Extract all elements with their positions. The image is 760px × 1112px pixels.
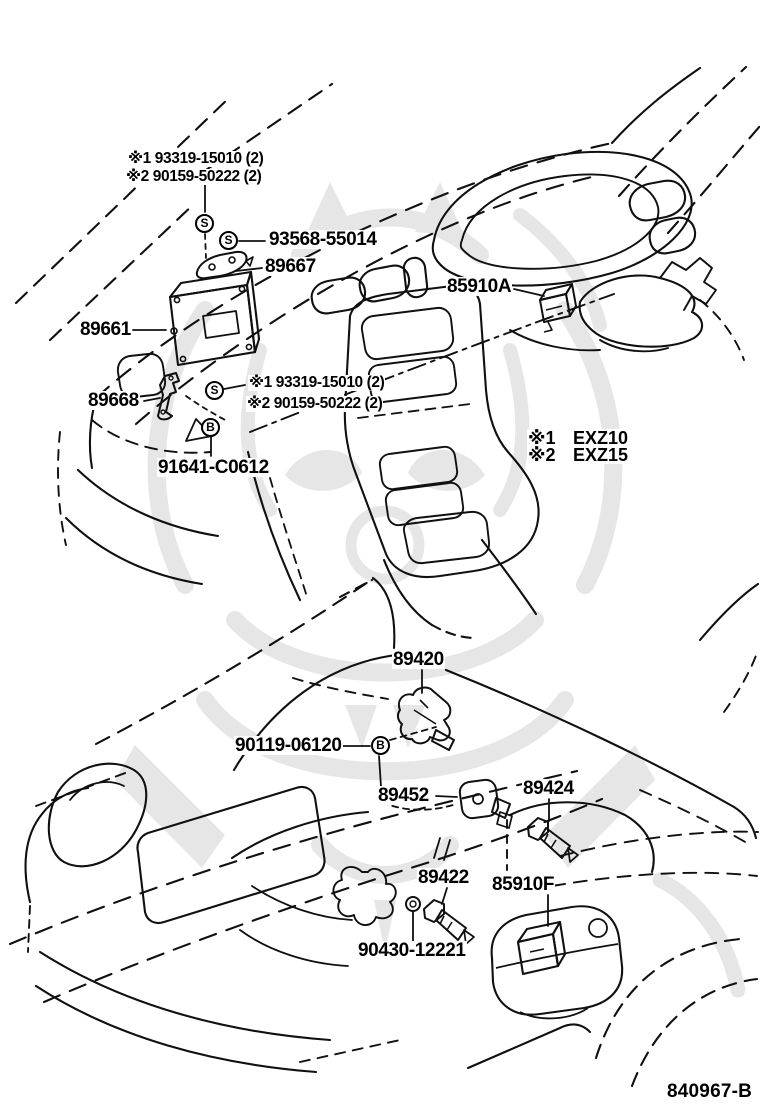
- fastener-note-mid-line1: ※1 93319-15010 (2): [248, 375, 385, 391]
- screw-symbol-2: S: [219, 231, 238, 250]
- drawing-number: 840967-B: [666, 1082, 753, 1101]
- part-number-90430-12221-label: 90430-12221: [357, 941, 467, 960]
- vehicle-front-illustration: [10, 578, 758, 1086]
- part-number-89452-label: 89452: [377, 786, 430, 805]
- relay-85910F-drawing: [492, 906, 623, 1018]
- part-number-89661-label: 89661: [79, 320, 132, 339]
- screw-symbol-1: S: [195, 214, 214, 233]
- parts-diagram-canvas: ※1 93319-15010 (2) ※2 90159-50222 (2) 93…: [0, 0, 760, 1112]
- fastener-note-mid-line2: ※2 90159-50222 (2): [246, 396, 383, 412]
- part-number-91641-C0612-label: 91641-C0612: [157, 458, 270, 477]
- legend-mark-2: ※2: [527, 446, 557, 464]
- part-number-89424-label: 89424: [522, 779, 575, 798]
- fastener-note-top-line2: ※2 90159-50222 (2): [125, 169, 262, 185]
- sensor-89422-drawing: [424, 900, 474, 944]
- part-number-90119-06120-label: 90119-06120: [234, 736, 343, 755]
- fastener-note-top-line1: ※1 93319-15010 (2): [127, 151, 264, 167]
- part-number-89667-label: 89667: [264, 257, 317, 276]
- part-number-89420-label: 89420: [392, 650, 445, 669]
- part-number-89422-label: 89422: [417, 868, 470, 887]
- screw-symbol-3: S: [205, 381, 224, 400]
- bolt-symbol-2: B: [371, 736, 390, 755]
- part-number-89668-label: 89668: [87, 391, 140, 410]
- gasket-90430-drawing: [406, 897, 420, 911]
- part-number-85910F-label: 85910F: [491, 875, 555, 894]
- sensor-89452-drawing: [460, 780, 512, 828]
- part-number-85910A-label: 85910A: [446, 277, 512, 296]
- legend-model-2: EXZ15: [572, 446, 629, 464]
- bolt-symbol-1: B: [201, 418, 220, 437]
- part-number-93568-55014-label: 93568-55014: [268, 230, 378, 249]
